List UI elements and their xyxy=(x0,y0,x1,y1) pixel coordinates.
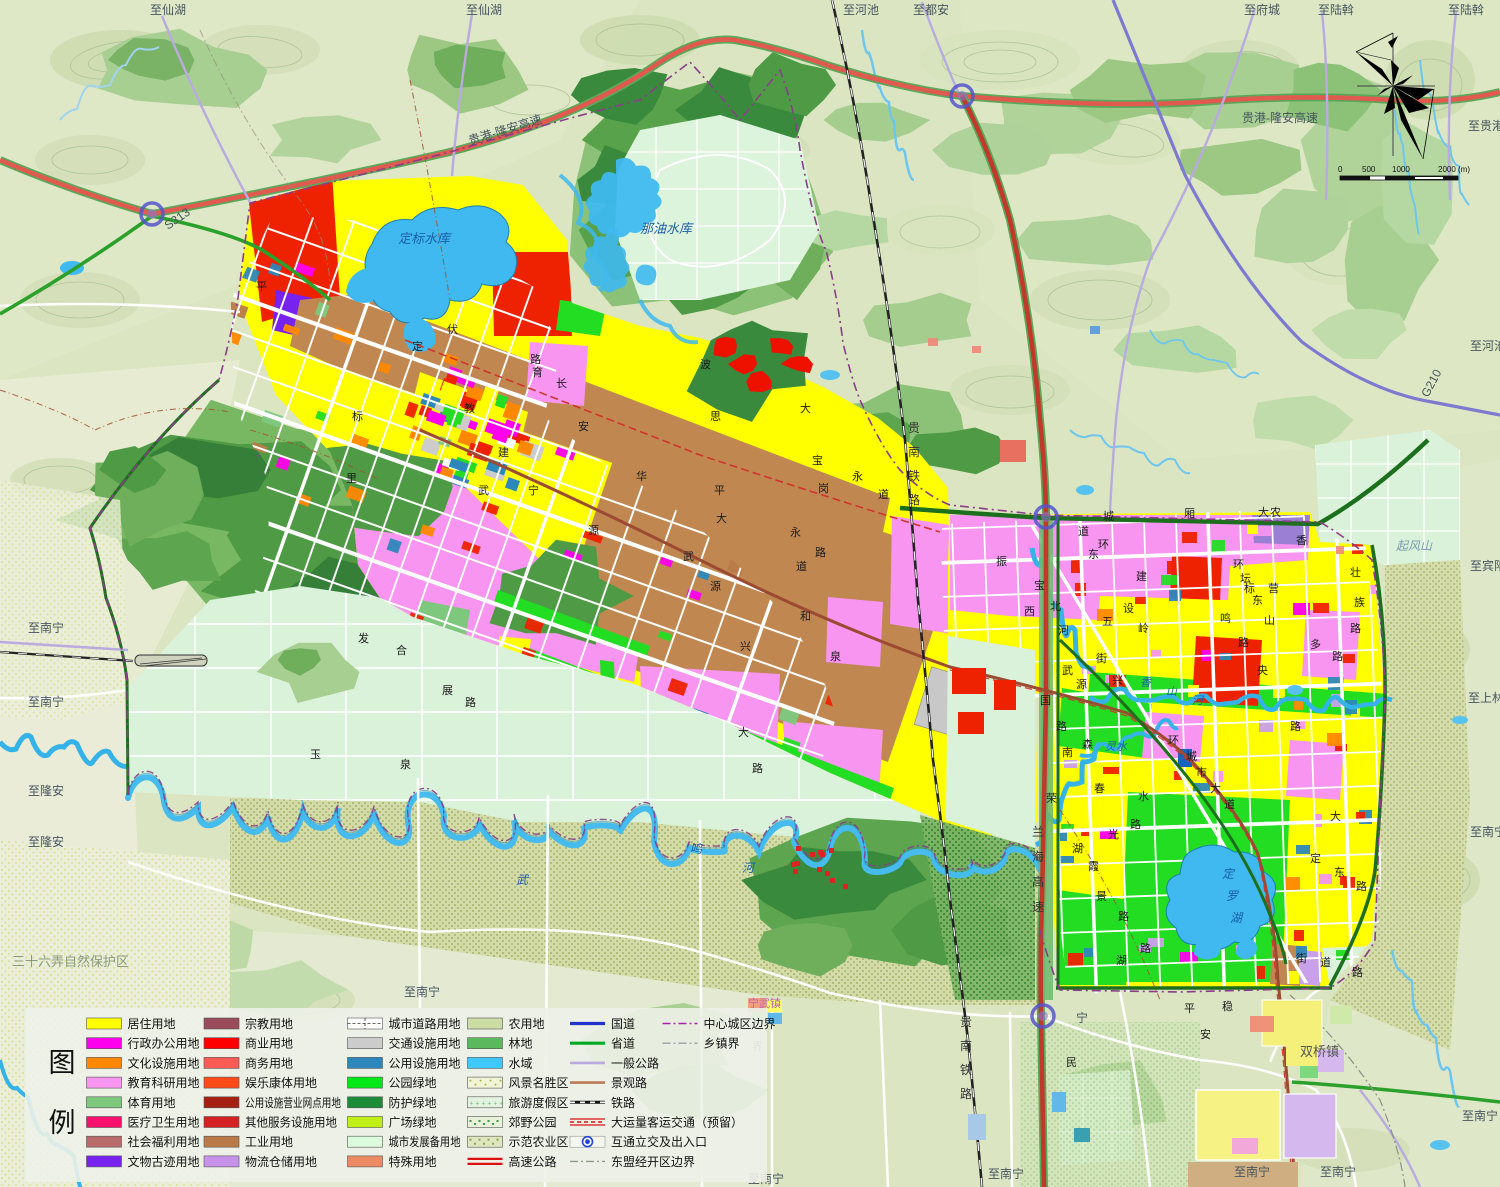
svg-text:厢: 厢 xyxy=(1184,507,1195,520)
svg-text:伏: 伏 xyxy=(447,322,458,336)
svg-text:居住用地: 居住用地 xyxy=(128,1017,176,1031)
svg-text:1000: 1000 xyxy=(1392,165,1410,174)
svg-text:至河池: 至河池 xyxy=(1470,339,1500,353)
svg-text:山: 山 xyxy=(1264,614,1275,627)
svg-text:至南宁: 至南宁 xyxy=(1234,1164,1270,1179)
svg-text:旅游度假区: 旅游度假区 xyxy=(509,1095,569,1110)
svg-text:大: 大 xyxy=(1210,781,1221,795)
svg-text:环: 环 xyxy=(1168,735,1179,747)
svg-text:至陆斡: 至陆斡 xyxy=(1318,2,1354,17)
svg-text:教: 教 xyxy=(464,402,475,415)
svg-text:标: 标 xyxy=(352,409,363,423)
svg-text:南: 南 xyxy=(908,444,920,459)
svg-text:东: 东 xyxy=(1252,594,1263,607)
svg-text:和: 和 xyxy=(800,610,811,623)
svg-text:医疗卫生用地: 医疗卫生用地 xyxy=(128,1116,200,1130)
svg-text:香: 香 xyxy=(1296,534,1307,547)
svg-text:武: 武 xyxy=(478,484,489,497)
svg-text:文物古迹用地: 文物古迹用地 xyxy=(128,1154,200,1169)
svg-text:至南宁: 至南宁 xyxy=(1470,824,1500,839)
svg-text:东盟经开区边界: 东盟经开区边界 xyxy=(611,1155,695,1169)
svg-text:族: 族 xyxy=(1354,595,1365,609)
svg-text:宗教用地: 宗教用地 xyxy=(245,1016,293,1031)
svg-text:武: 武 xyxy=(1062,664,1073,677)
svg-text:速: 速 xyxy=(1032,900,1044,914)
svg-text:公用设施营业网点用地: 公用设施营业网点用地 xyxy=(245,1096,341,1110)
svg-text:至府城: 至府城 xyxy=(1244,2,1280,17)
svg-text:娱乐康体用地: 娱乐康体用地 xyxy=(245,1075,317,1090)
svg-text:至仙湖: 至仙湖 xyxy=(466,2,502,17)
svg-text:中心城区边界: 中心城区边界 xyxy=(704,1016,776,1031)
svg-text:互通立交及出入口: 互通立交及出入口 xyxy=(611,1134,707,1149)
svg-text:大: 大 xyxy=(800,401,811,415)
svg-text:高速公路: 高速公路 xyxy=(509,1154,557,1169)
svg-text:+: + xyxy=(476,1099,480,1107)
svg-text:定: 定 xyxy=(412,339,423,353)
svg-text:社会福利用地: 社会福利用地 xyxy=(128,1134,200,1149)
svg-text:波: 波 xyxy=(700,358,711,371)
svg-text:建: 建 xyxy=(498,445,509,459)
svg-text:图: 图 xyxy=(49,1048,76,1078)
svg-text:路: 路 xyxy=(1130,818,1141,831)
svg-text:安: 安 xyxy=(578,419,589,433)
svg-text:道: 道 xyxy=(796,559,807,573)
svg-text:公用设施用地: 公用设施用地 xyxy=(389,1056,461,1070)
svg-text:体育用地: 体育用地 xyxy=(128,1095,176,1110)
svg-text:源: 源 xyxy=(1076,677,1087,691)
svg-text:+: + xyxy=(488,1099,492,1107)
svg-text:至南宁: 至南宁 xyxy=(28,620,64,635)
svg-text:贵港-隆安高速: 贵港-隆安高速 xyxy=(1242,110,1318,125)
svg-text:国: 国 xyxy=(1040,694,1051,707)
svg-text:省道: 省道 xyxy=(611,1037,635,1051)
svg-text:西: 西 xyxy=(1024,606,1035,618)
svg-text:+: + xyxy=(500,1099,504,1107)
svg-text:定: 定 xyxy=(1222,867,1236,881)
svg-text:一般公路: 一般公路 xyxy=(611,1055,659,1070)
svg-text:宁: 宁 xyxy=(1076,1010,1088,1025)
svg-text:铁: 铁 xyxy=(908,469,920,483)
svg-text:路: 路 xyxy=(1352,966,1363,979)
svg-text:东: 东 xyxy=(1334,866,1345,879)
svg-text:建: 建 xyxy=(1136,569,1147,583)
svg-text:三十六弄自然保护区: 三十六弄自然保护区 xyxy=(12,954,129,969)
svg-text:2000 (m): 2000 (m) xyxy=(1438,165,1470,174)
svg-text:至仙湖: 至仙湖 xyxy=(150,2,186,17)
svg-text:罗: 罗 xyxy=(1226,889,1240,903)
svg-text:水: 水 xyxy=(1138,790,1149,803)
svg-text:里: 里 xyxy=(346,472,357,485)
svg-text:商业用地: 商业用地 xyxy=(245,1036,293,1051)
svg-text:定: 定 xyxy=(1310,851,1321,865)
svg-text:森: 森 xyxy=(1082,737,1093,751)
svg-text:+: + xyxy=(482,1099,486,1107)
svg-text:兰: 兰 xyxy=(1032,825,1044,839)
svg-text:营: 营 xyxy=(1268,581,1279,595)
svg-text:至宾阳: 至宾阳 xyxy=(1470,558,1500,573)
svg-text:平: 平 xyxy=(1184,1003,1195,1015)
svg-text:大: 大 xyxy=(1258,505,1269,519)
svg-text:岭: 岭 xyxy=(1138,621,1149,635)
svg-text:荣: 荣 xyxy=(1046,792,1057,805)
svg-text:贵: 贵 xyxy=(908,421,920,435)
svg-text:文化设施用地: 文化设施用地 xyxy=(128,1055,200,1070)
svg-text:标: 标 xyxy=(1244,581,1255,595)
svg-text:路: 路 xyxy=(908,492,920,507)
svg-text:路: 路 xyxy=(1118,910,1129,923)
svg-text:+: + xyxy=(470,1099,474,1107)
svg-text:至南宁: 至南宁 xyxy=(404,984,440,999)
svg-text:至贵港: 至贵港 xyxy=(1468,119,1500,133)
svg-text:宁武镇: 宁武镇 xyxy=(748,996,781,1010)
svg-text:路: 路 xyxy=(1350,622,1361,635)
svg-text:郊野公园: 郊野公园 xyxy=(509,1116,557,1130)
svg-text:央: 央 xyxy=(1257,664,1268,677)
svg-text:特殊用地: 特殊用地 xyxy=(389,1154,437,1169)
svg-text:湖: 湖 xyxy=(1072,842,1083,855)
svg-text:农: 农 xyxy=(1270,505,1281,519)
svg-text:乡镇界: 乡镇界 xyxy=(704,1037,740,1051)
svg-text:城: 城 xyxy=(1186,750,1197,763)
svg-text:那油水库: 那油水库 xyxy=(640,221,694,236)
svg-text:展: 展 xyxy=(442,684,453,697)
svg-text:商务用地: 商务用地 xyxy=(245,1055,293,1070)
svg-text:街: 街 xyxy=(1296,951,1307,965)
svg-text:工业用地: 工业用地 xyxy=(245,1135,293,1149)
svg-text:路: 路 xyxy=(1238,636,1249,649)
svg-text:春: 春 xyxy=(1094,782,1105,795)
svg-text:路: 路 xyxy=(1290,720,1301,733)
svg-text:五: 五 xyxy=(1102,616,1113,628)
svg-text:贵: 贵 xyxy=(960,1015,972,1029)
svg-text:壮: 壮 xyxy=(1350,566,1361,579)
svg-text:市: 市 xyxy=(1196,765,1207,779)
svg-text:振: 振 xyxy=(996,554,1007,568)
svg-text:至都安: 至都安 xyxy=(913,2,949,17)
svg-text:兴: 兴 xyxy=(1112,674,1123,687)
svg-text:道: 道 xyxy=(878,487,889,501)
svg-text:起风山: 起风山 xyxy=(1396,539,1433,553)
svg-text:至隆安: 至隆安 xyxy=(28,783,64,798)
svg-text:宁: 宁 xyxy=(528,483,539,497)
svg-text:景观路: 景观路 xyxy=(611,1075,647,1090)
svg-text:防护绿地: 防护绿地 xyxy=(389,1095,437,1110)
svg-text:路: 路 xyxy=(1332,650,1343,663)
svg-text:宝: 宝 xyxy=(812,453,823,467)
svg-text:至陆斡: 至陆斡 xyxy=(1448,2,1484,17)
svg-text:路: 路 xyxy=(1056,720,1067,733)
svg-text:城市发展备用地: 城市发展备用地 xyxy=(389,1134,461,1149)
svg-text:例: 例 xyxy=(49,1108,76,1138)
svg-text:铁路: 铁路 xyxy=(611,1095,635,1110)
svg-text:玉: 玉 xyxy=(310,749,321,761)
svg-text:0: 0 xyxy=(1338,165,1343,174)
svg-text:大: 大 xyxy=(1330,809,1341,823)
svg-text:道: 道 xyxy=(1320,955,1331,969)
svg-text:湖: 湖 xyxy=(1230,911,1244,925)
svg-text:设: 设 xyxy=(1123,602,1134,615)
svg-text:山: 山 xyxy=(1166,685,1178,698)
svg-text:路: 路 xyxy=(752,762,763,775)
svg-text:行政办公用地: 行政办公用地 xyxy=(128,1036,200,1051)
svg-text:交通设施用地: 交通设施用地 xyxy=(389,1036,461,1051)
svg-text:大: 大 xyxy=(738,725,749,739)
svg-text:林地: 林地 xyxy=(509,1037,533,1051)
svg-text:灵水: 灵水 xyxy=(1105,740,1128,753)
svg-text:鸣: 鸣 xyxy=(690,842,703,856)
svg-text:光: 光 xyxy=(1108,827,1119,841)
svg-text:至南宁: 至南宁 xyxy=(28,694,64,709)
svg-text:500: 500 xyxy=(1362,165,1376,174)
svg-text:定标水库: 定标水库 xyxy=(398,231,452,246)
svg-text:路: 路 xyxy=(815,546,826,559)
svg-text:永: 永 xyxy=(790,525,801,539)
svg-text:泉: 泉 xyxy=(400,757,411,771)
svg-text:风景名胜区: 风景名胜区 xyxy=(509,1075,569,1090)
svg-text:北: 北 xyxy=(1050,600,1061,613)
svg-text:其他服务设施用地: 其他服务设施用地 xyxy=(245,1115,337,1130)
svg-text:至南宁: 至南宁 xyxy=(1320,1164,1356,1179)
svg-text:环: 环 xyxy=(1098,539,1109,551)
svg-text:至隆安: 至隆安 xyxy=(28,834,64,849)
svg-text:示范农业区: 示范农业区 xyxy=(509,1135,569,1149)
svg-text:农用地: 农用地 xyxy=(509,1017,545,1031)
svg-text:城市道路用地: 城市道路用地 xyxy=(389,1016,461,1031)
svg-text:大运量客运交通（预留）: 大运量客运交通（预留） xyxy=(611,1115,743,1130)
svg-text:平: 平 xyxy=(256,281,267,293)
svg-text:武: 武 xyxy=(683,550,694,563)
svg-text:道: 道 xyxy=(1224,797,1235,811)
svg-text:环: 环 xyxy=(1233,559,1244,571)
svg-text:街: 街 xyxy=(1096,651,1107,665)
svg-text:至南宁: 至南宁 xyxy=(1462,1108,1498,1123)
svg-text:公园绿地: 公园绿地 xyxy=(389,1075,437,1090)
svg-text:+: + xyxy=(494,1099,498,1107)
svg-text:武: 武 xyxy=(516,873,530,887)
svg-text:稳: 稳 xyxy=(1222,999,1233,1013)
svg-text:鸣: 鸣 xyxy=(1220,611,1231,625)
svg-text:南: 南 xyxy=(960,1038,972,1053)
svg-text:至南宁: 至南宁 xyxy=(988,1166,1024,1181)
svg-text:南: 南 xyxy=(1062,746,1073,759)
svg-text:永: 永 xyxy=(852,469,863,483)
svg-text:路: 路 xyxy=(1356,880,1367,893)
svg-text:发: 发 xyxy=(358,631,369,645)
svg-text:长: 长 xyxy=(556,377,567,390)
svg-text:路: 路 xyxy=(530,353,541,366)
svg-text:国道: 国道 xyxy=(611,1017,635,1031)
svg-text:湖: 湖 xyxy=(1116,954,1127,967)
svg-text:教育科研用地: 教育科研用地 xyxy=(128,1075,200,1090)
svg-text:霞: 霞 xyxy=(1088,860,1099,873)
svg-text:高: 高 xyxy=(1032,874,1044,889)
svg-text:路: 路 xyxy=(465,696,476,709)
svg-text:物流仓储用地: 物流仓储用地 xyxy=(245,1154,317,1169)
svg-text:至河池: 至河池 xyxy=(843,3,879,17)
svg-text:多: 多 xyxy=(1310,637,1321,651)
svg-text:水域: 水域 xyxy=(509,1056,533,1070)
svg-text:景: 景 xyxy=(1096,890,1107,903)
svg-text:广场绿地: 广场绿地 xyxy=(389,1115,437,1130)
svg-text:平: 平 xyxy=(714,485,725,497)
svg-text:铁: 铁 xyxy=(960,1063,972,1077)
svg-text:源: 源 xyxy=(710,579,721,593)
svg-text:民: 民 xyxy=(1066,1057,1077,1069)
svg-text:宝: 宝 xyxy=(1034,578,1045,592)
svg-text:育: 育 xyxy=(532,365,543,379)
svg-text:河: 河 xyxy=(1058,624,1069,637)
svg-text:河: 河 xyxy=(742,861,756,875)
svg-text:路: 路 xyxy=(960,1086,972,1101)
svg-text:源: 源 xyxy=(588,523,599,537)
svg-text:合: 合 xyxy=(396,643,407,657)
svg-text:道: 道 xyxy=(1078,524,1089,538)
svg-text:思: 思 xyxy=(710,410,721,423)
svg-text:城: 城 xyxy=(1103,510,1114,523)
svg-text:华: 华 xyxy=(636,469,647,483)
svg-text:至上林: 至上林 xyxy=(1468,691,1500,705)
svg-text:岗: 岗 xyxy=(818,482,829,495)
svg-text:安: 安 xyxy=(1200,1027,1211,1041)
svg-text:路: 路 xyxy=(1140,942,1151,955)
svg-text:泉: 泉 xyxy=(830,649,841,663)
svg-text:海: 海 xyxy=(1032,849,1044,864)
svg-text:大: 大 xyxy=(716,511,727,525)
svg-text:双桥镇: 双桥镇 xyxy=(1300,1044,1339,1059)
svg-text:兴: 兴 xyxy=(740,640,751,653)
